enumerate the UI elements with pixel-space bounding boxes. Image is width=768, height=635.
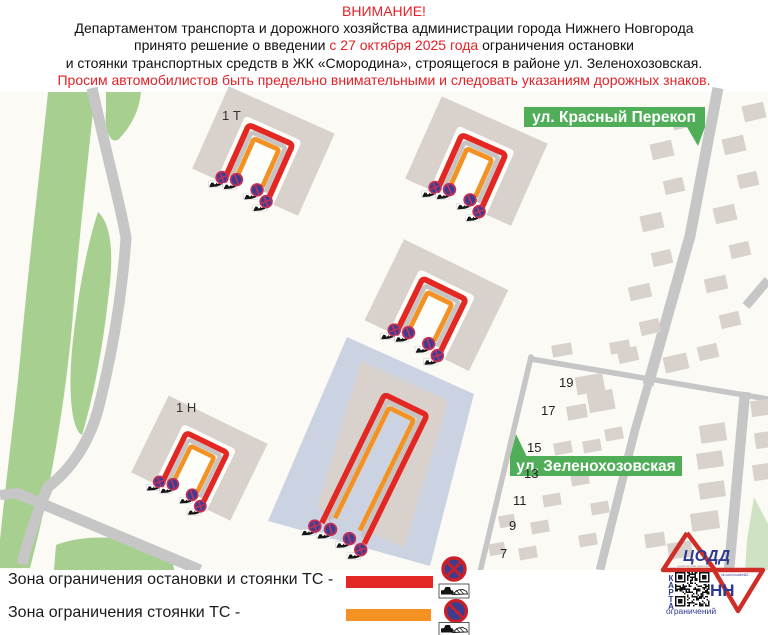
svg-text:Зона ограничения стоянки ТС -: Зона ограничения стоянки ТС -	[8, 604, 240, 621]
svg-text:ул. Зеленохозовская: ул. Зеленохозовская	[516, 458, 675, 475]
svg-text:17: 17	[541, 403, 555, 418]
svg-text:13: 13	[524, 466, 538, 481]
svg-text:vk.com/coddnn52: vk.com/coddnn52	[721, 573, 748, 577]
svg-text:7: 7	[500, 546, 507, 561]
svg-text:НН: НН	[710, 581, 735, 600]
svg-text:ул. Красный Перекоп: ул. Красный Перекоп	[532, 109, 696, 126]
svg-text:1 Т: 1 Т	[222, 108, 241, 123]
svg-text:Зона ограничения остановки и с: Зона ограничения остановки и стоянки ТС …	[8, 571, 333, 588]
svg-text:19: 19	[559, 375, 573, 390]
svg-text:15: 15	[527, 440, 541, 455]
svg-text:ограничений: ограничений	[666, 606, 716, 616]
svg-text:транспортная дирекция: транспортная дирекция	[677, 564, 710, 568]
svg-text:ЦОДД: ЦОДД	[683, 548, 731, 565]
svg-text:9: 9	[509, 518, 516, 533]
svg-text:11: 11	[513, 493, 527, 508]
svg-text:1 Н: 1 Н	[176, 400, 196, 415]
